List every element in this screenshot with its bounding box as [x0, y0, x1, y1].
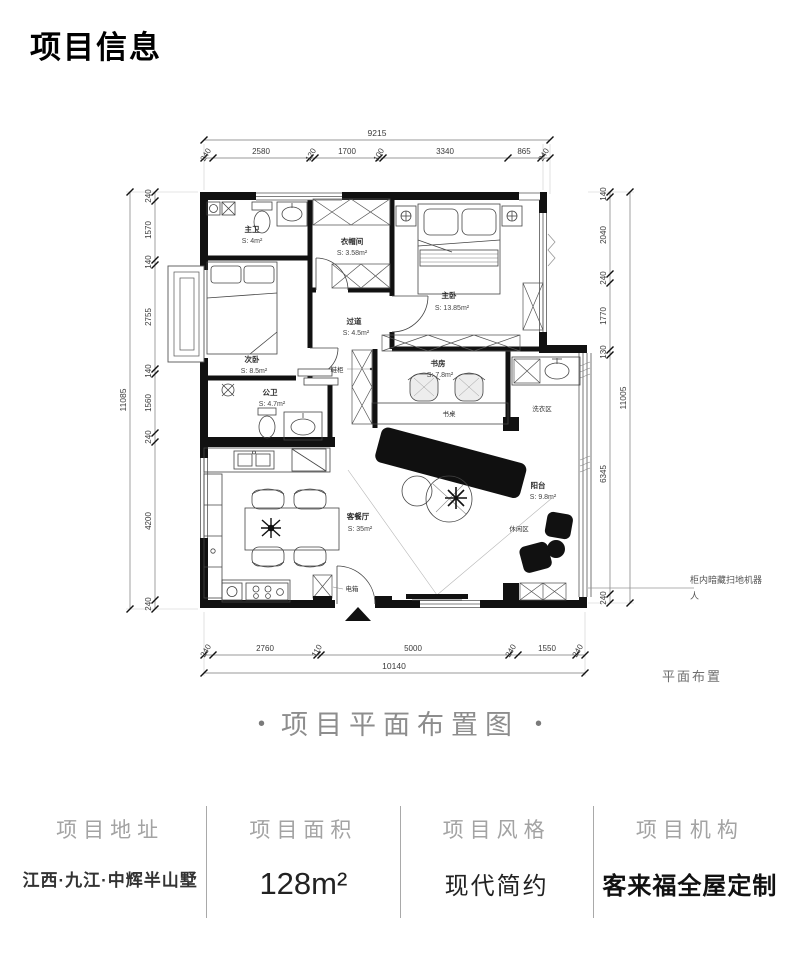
dim-label: 1570 [144, 221, 153, 239]
entry-door [337, 566, 375, 604]
master-bed [418, 204, 500, 294]
caption-left-dot: • [258, 713, 265, 735]
laundry-fixtures [512, 357, 580, 385]
label-shoe-cabinet: 鞋柜 [331, 365, 345, 374]
dim-label: 1700 [338, 147, 356, 156]
second-bedroom-furniture [207, 262, 277, 354]
sofa [374, 426, 528, 500]
bottom-right-cabinets [520, 583, 566, 600]
dim-label: 6345 [599, 465, 608, 483]
dim-bottom-total: 10140 [382, 661, 406, 671]
plan-caption: •项目平面布置图• [0, 703, 800, 742]
curtain-icon [548, 234, 555, 266]
dim-label: 1560 [144, 394, 153, 412]
dim-label: 5000 [404, 644, 422, 653]
dim-label: 240 [144, 430, 153, 444]
dim-label: 140 [599, 187, 608, 201]
bay-window-second-bedroom [168, 266, 209, 362]
dim-label: 140 [144, 255, 153, 269]
hallway-cabinet [352, 350, 372, 424]
plant-icon [445, 487, 467, 509]
room-label-master-bath: 主卫 [245, 224, 260, 234]
room-label-hallway: 过道 [347, 316, 362, 326]
entry-arrow-icon [345, 607, 371, 621]
room-area-hallway: S: 4.5m² [343, 330, 370, 337]
floor-plan-drawing: 9215 240 2580 120 1700 100 3340 865 240 … [0, 0, 800, 705]
room-label-living-dining: 客餐厅 [346, 511, 370, 521]
label-laundry: 洗衣区 [532, 404, 552, 413]
dim-label: 130 [599, 345, 608, 359]
corner-note: 平面布置 [662, 669, 722, 684]
dim-label: 120 [304, 146, 319, 163]
info-bar: 项目地址 江西·九江·中辉半山墅 项目面积 128m² 项目风格 现代简约 项目… [14, 806, 786, 918]
window-kitchen-left [200, 458, 209, 538]
dim-label: 140 [144, 364, 153, 378]
dim-label: 2760 [256, 644, 274, 653]
dim-label: 240 [144, 597, 153, 611]
room-label-cloakroom: 衣帽间 [341, 236, 364, 246]
dim-label: 2580 [252, 147, 270, 156]
caption-right-dot: • [535, 713, 542, 735]
annotation-robot-line1: 柜内暗藏扫地机器 [690, 574, 762, 585]
study-chair [453, 373, 485, 401]
room-label-balcony: 阳台 [531, 480, 546, 490]
info-label-org: 项目机构 [598, 814, 782, 844]
dining-chair [252, 489, 284, 509]
window-top-2 [519, 192, 540, 200]
entry-opening [335, 566, 375, 621]
living-room-furniture [348, 426, 552, 600]
room-area-living-dining: S: 35m² [348, 526, 373, 533]
room-area-second-bedroom: S: 8.5m² [241, 368, 268, 375]
room-area-balcony: S: 9.8m² [530, 494, 557, 501]
info-value-area: 128m² [211, 866, 395, 902]
dim-label: 240 [144, 189, 153, 203]
dim-label: 1770 [599, 307, 608, 325]
room-label-guest-bath: 公卫 [263, 388, 278, 397]
label-desk: 书桌 [443, 409, 457, 418]
dining-table [245, 508, 339, 550]
dim-label: 865 [517, 147, 531, 156]
room-area-master-bedroom: S: 13.85m² [435, 305, 470, 312]
study-desk [372, 403, 508, 424]
info-value-style: 现代简约 [405, 866, 589, 901]
room-label-study: 书房 [431, 358, 446, 368]
dining-set [245, 489, 339, 567]
tv [406, 594, 468, 599]
caption-text: 项目平面布置图 [281, 710, 519, 740]
room-label-master-bedroom: 主卧 [442, 290, 457, 300]
dim-label: 2040 [599, 226, 608, 244]
room-area-study: S: 7.8m² [427, 372, 454, 379]
dim-left-total: 11085 [118, 388, 128, 411]
info-label-style: 项目风格 [405, 814, 589, 844]
dim-label: 2755 [144, 308, 153, 326]
dim-label: 110 [310, 643, 324, 659]
balcony-furniture [518, 511, 574, 574]
dim-label: 1550 [538, 644, 556, 653]
dim-label: 240 [537, 146, 552, 163]
study-furniture [372, 373, 508, 424]
window-tv-wall [420, 600, 480, 608]
dim-label: 100 [372, 146, 387, 163]
dim-right-total: 11005 [618, 386, 628, 409]
pouf [544, 511, 574, 540]
info-label-address: 项目地址 [18, 814, 202, 844]
plant-icon [261, 518, 281, 538]
info-label-area: 项目面积 [211, 814, 395, 844]
dim-label: 4200 [144, 512, 153, 530]
label-leisure: 休闲区 [509, 524, 529, 533]
info-col-org: 项目机构 客来福全屋定制 [593, 806, 786, 918]
dim-top-total: 9215 [368, 128, 387, 138]
dining-chair [294, 489, 326, 509]
info-value-org: 客来福全屋定制 [598, 866, 782, 901]
dim-label: 240 [599, 591, 608, 605]
room-area-guest-bath: S: 4.7m² [259, 401, 286, 408]
label-electric-box: 电箱 [346, 584, 360, 593]
window-balcony-right [578, 353, 591, 597]
annotation-robot-line2: 人 [690, 591, 699, 601]
info-value-address: 江西·九江·中辉半山墅 [18, 866, 202, 891]
page: 项目信息 [0, 0, 800, 961]
electric-box-column [313, 575, 332, 604]
dim-label: 240 [599, 271, 608, 285]
room-area-master-bath: S: 4m² [242, 238, 263, 245]
room-label-second-bedroom: 次卧 [245, 354, 260, 364]
dim-label: 3340 [436, 147, 454, 156]
info-col-area: 项目面积 128m² [206, 806, 399, 918]
room-area-cloakroom: S: 3.58m² [337, 250, 368, 257]
info-col-address: 项目地址 江西·九江·中辉半山墅 [14, 806, 206, 918]
info-col-style: 项目风格 现代简约 [400, 806, 593, 918]
